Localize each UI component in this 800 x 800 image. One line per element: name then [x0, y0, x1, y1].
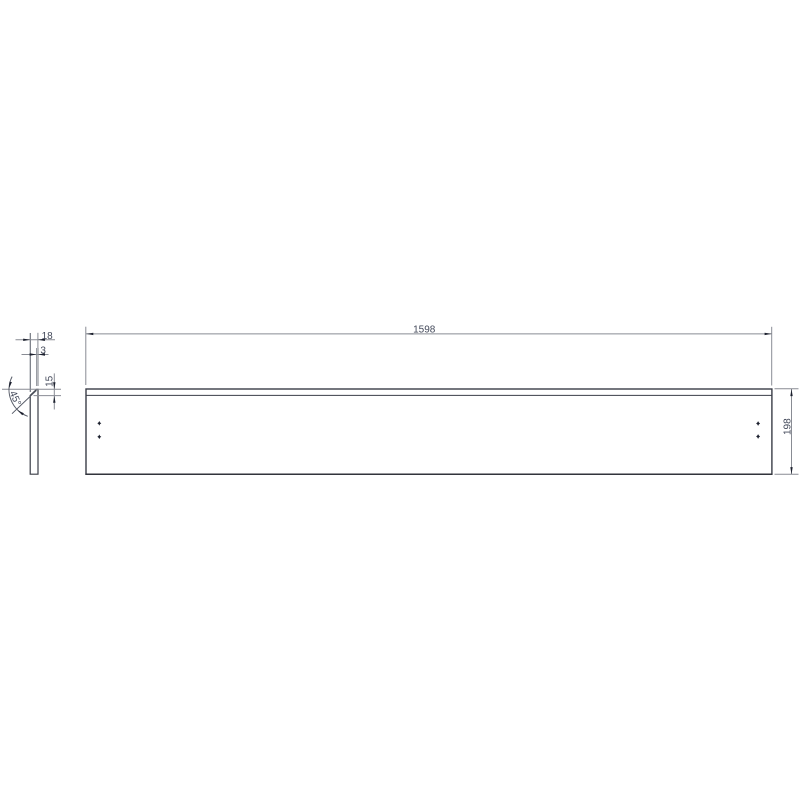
svg-text:1598: 1598 — [413, 325, 436, 336]
svg-text:3: 3 — [40, 346, 46, 357]
svg-text:18: 18 — [42, 331, 54, 342]
svg-text:198: 198 — [783, 418, 794, 435]
svg-text:15: 15 — [45, 375, 56, 387]
